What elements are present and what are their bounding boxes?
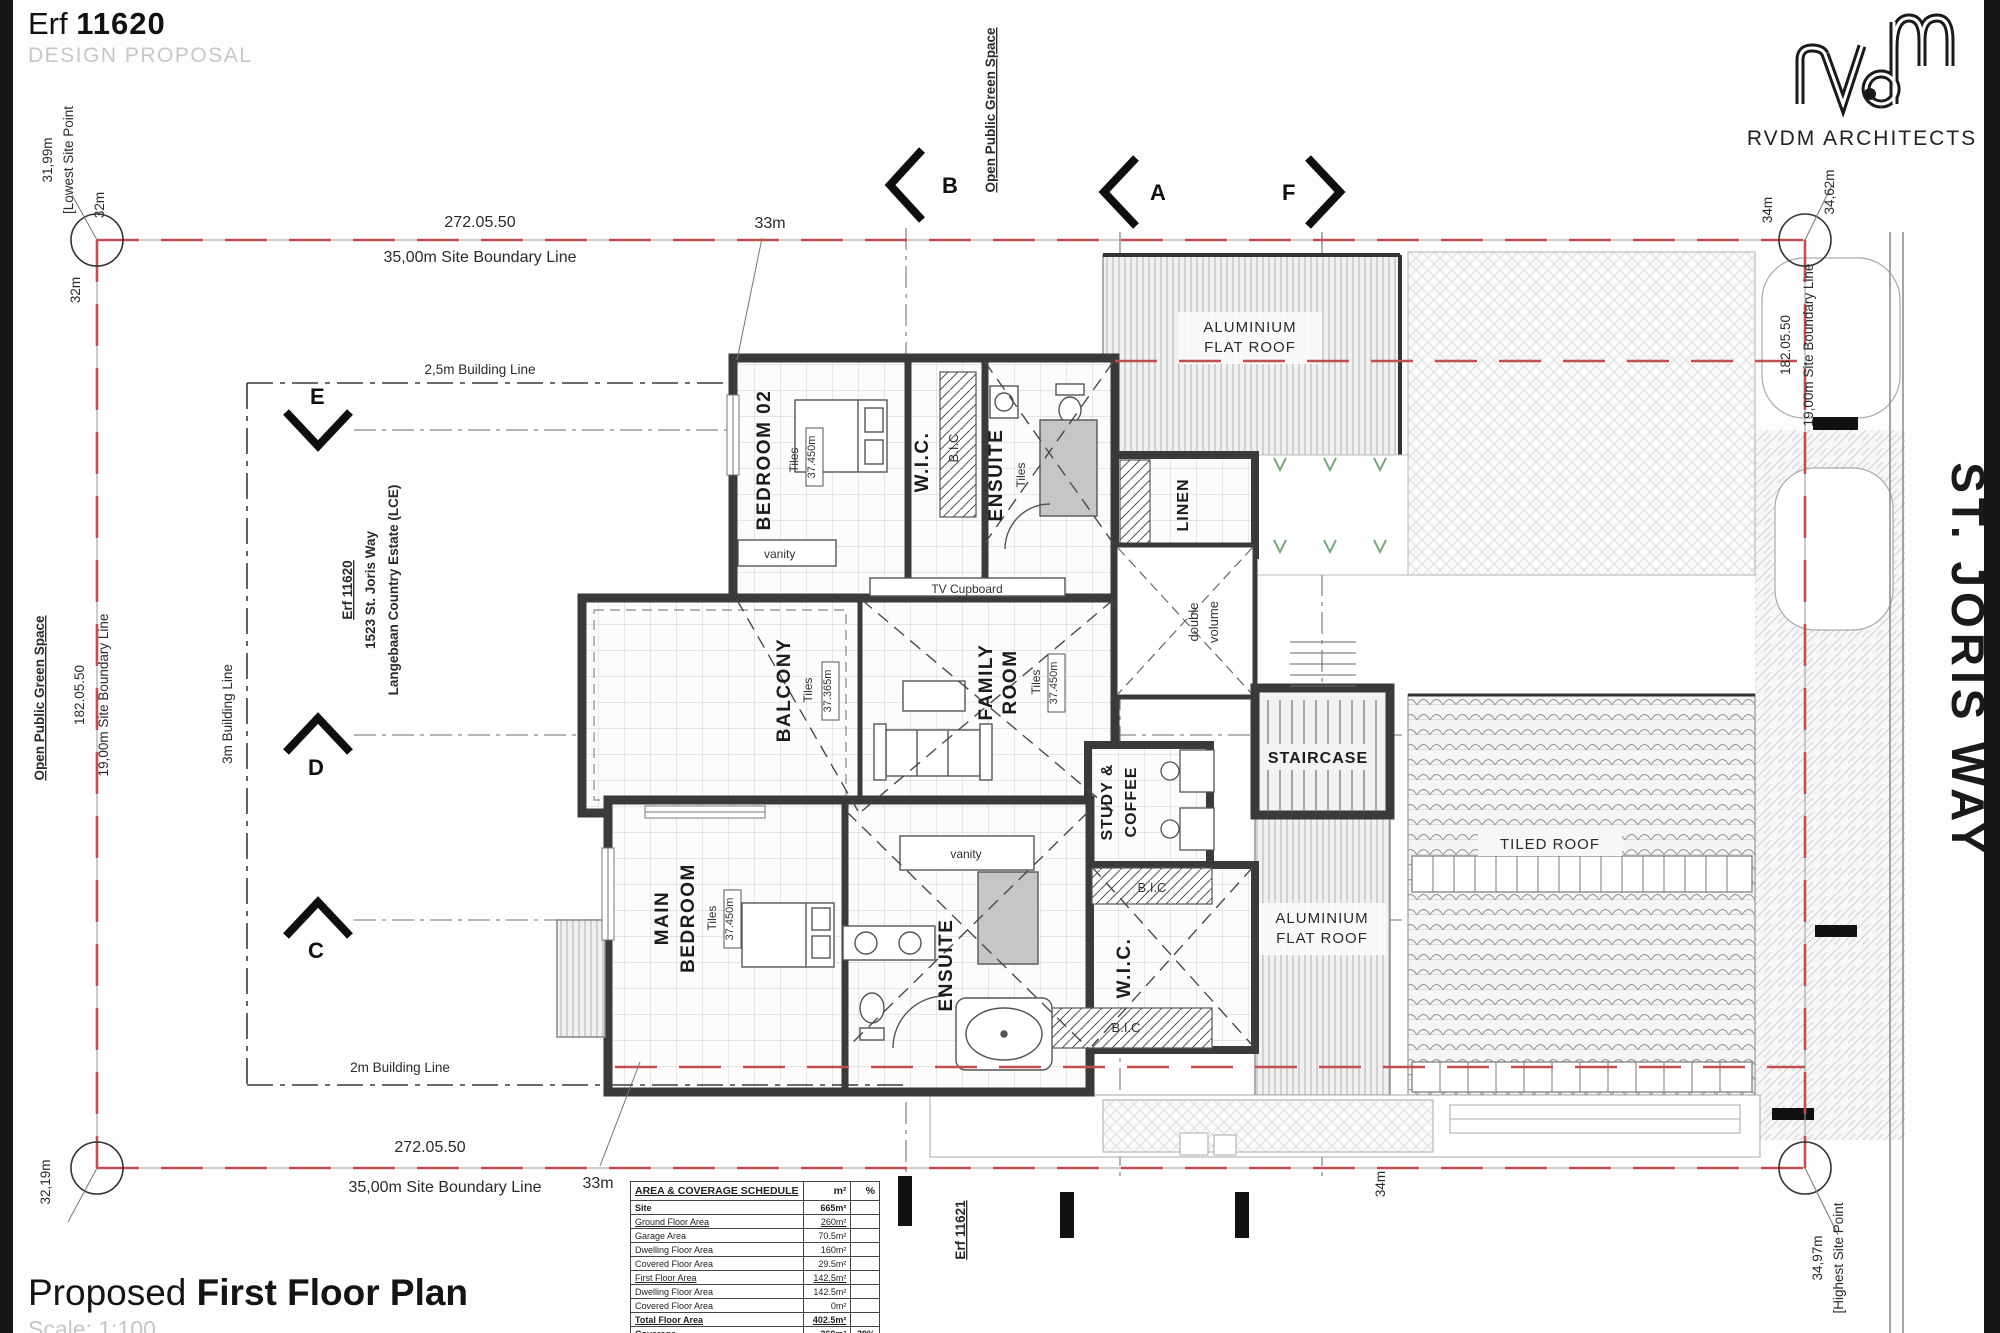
lowest-site-value: 31,99m [40,137,55,182]
dim-34m-bottom: 34m [1373,1171,1388,1197]
marker-d: D [308,755,324,780]
erf-label: Erf [28,6,68,41]
marker-a: A [1150,180,1166,205]
street-name: ST. JORIS WAY [1942,462,1994,858]
building-line-3: 3m Building Line [220,664,235,764]
label-bedroom02-finish: Tiles [787,448,801,473]
sheet-footer: Proposed First Floor Plan Scale: 1:100 [28,1272,468,1333]
lawn-blob-2 [1775,468,1893,630]
label-study-2: COFFEE [1123,767,1140,838]
top-boundary-label: 35,00m Site Boundary Line [383,249,576,266]
schedule-pct [851,1229,880,1243]
left-bearing: 182.05.50 [72,665,87,725]
lowest-site-note: [Lowest Site Point [61,106,76,214]
label-balcony-level: 37.365m [822,670,834,713]
room-balcony-family [582,598,1115,813]
label-wic-lower: W.I.C. [1114,938,1135,999]
right-bearing: 182.05.50 [1778,315,1793,375]
schedule-label: Dwelling Floor Area [631,1285,804,1299]
schedule-title: AREA & COVERAGE SCHEDULE [631,1182,804,1201]
highest-site-note: [Highest Site Point [1831,1202,1846,1313]
label-linen: LINEN [1175,479,1192,532]
schedule-m2: 142.5m² [803,1285,851,1299]
floor-plan-sheet: ST. JORIS WAY [0,0,2000,1333]
tick-1 [898,1176,912,1226]
column-braai [557,920,605,1037]
schedule-pct [851,1257,880,1271]
bottom-bearing: 272.05.50 [394,1139,465,1156]
label-bic-lower-bottom: B.I.C [1112,1020,1141,1035]
marker-e: E [310,384,325,409]
marker-c: C [308,938,324,963]
tick-2 [1060,1192,1074,1238]
label-wic-upper: W.I.C. [912,432,933,493]
tick-3 [1235,1192,1249,1238]
right-boundary-label: 19,00m Site Boundary Line [1801,264,1816,427]
sheet-header: Erf 11620 DESIGN PROPOSAL [28,6,252,68]
dim-33m-top: 33m [754,215,785,232]
road-tick-1 [1813,417,1858,430]
schedule-label: Covered Floor Area [631,1257,804,1271]
erf-address-1: Erf 11620 [340,560,355,619]
schedule-pct [851,1285,880,1299]
planter-strip [1255,455,1408,575]
label-bedroom02-level: 37.450m [806,436,818,479]
label-ensuite-upper: ENSUITE [986,429,1007,522]
schedule-pct [851,1299,880,1313]
road-tick-2 [1815,925,1857,937]
schedule-m2: 70.5m² [803,1229,851,1243]
label-bedroom02: BEDROOM 02 [754,390,775,531]
schedule-row: Garage Area70.5m² [631,1229,880,1243]
dim-33m-bottom: 33m [582,1175,613,1192]
schedule-pct [851,1215,880,1229]
dim-3219: 32,19m [38,1159,53,1204]
linen-bic-hatch [1120,460,1150,550]
label-ensuite-lower: ENSUITE [936,919,957,1012]
label-main-level: 37.450m [724,898,736,941]
label-balcony: BALCONY [774,638,795,742]
erf-title: Erf 11620 [28,6,252,42]
label-vanity-lower: vanity [950,847,981,861]
ground-floor-hint [930,1095,1760,1157]
schedule-row: Coverage260m²39% [631,1327,880,1333]
label-vanity-upper: vanity [764,547,795,561]
schedule-label: Garage Area [631,1229,804,1243]
plan-drawing: ST. JORIS WAY [0,0,2000,1333]
label-main-1: MAIN [652,891,673,946]
drawing-title-bold: First Floor Plan [197,1272,468,1313]
schedule-label: Coverage [631,1327,804,1333]
rvdm-logo-mark [1742,8,1982,120]
erf-address-3: Langebaan Country Estate (LCE) [386,485,401,696]
label-study-1: STUDY & [1099,764,1116,841]
schedule-m2: 142.5m² [803,1271,851,1285]
flat-roof-top-label-2: FLAT ROOF [1204,339,1296,356]
marker-f: F [1282,180,1295,205]
staircase-label: STAIRCASE [1268,750,1368,767]
building-line-2: 2m Building Line [350,1060,450,1075]
schedule-m2: 0m² [803,1299,851,1313]
label-ensuite-upper-finish: Tiles [1014,463,1028,488]
bed-main [742,903,834,967]
label-double-volume-2: volume [1206,601,1221,643]
schedule-row: Covered Floor Area0m² [631,1299,880,1313]
highest-site-value: 34,97m [1810,1235,1825,1280]
schedule-header-row: AREA & COVERAGE SCHEDULE m² % [631,1182,880,1201]
label-family-finish: Tiles [1029,670,1043,695]
green-space-left: Open Public Green Space [32,615,47,781]
green-space-top: Open Public Green Space [983,27,998,193]
dim-32m-a: 32m [92,192,107,218]
schedule-m2: 665m² [803,1201,851,1215]
erf-neighbor: Erf 11621 [953,1200,968,1260]
architect-logo: RVDM ARCHITECTS [1742,8,1982,158]
tiled-roof-label: TILED ROOF [1500,836,1600,853]
drawing-title: Proposed First Floor Plan [28,1272,468,1314]
marker-b: B [942,173,958,198]
neighbor-paving [1408,252,1755,575]
schedule-label: Dwelling Floor Area [631,1243,804,1257]
label-bic-upper: B.I.C [946,434,961,463]
label-balcony-finish: Tiles [801,678,815,703]
dim-34m-top: 34m [1760,197,1775,223]
schedule-row: Dwelling Floor Area160m² [631,1243,880,1257]
flat-roof-lower-label-2: FLAT ROOF [1276,930,1368,947]
schedule-row: Dwelling Floor Area142.5m² [631,1285,880,1299]
schedule-pct [851,1313,880,1327]
schedule-label: Ground Floor Area [631,1215,804,1229]
drawing-scale: Scale: 1:100 [28,1316,468,1333]
schedule-pct: 39% [851,1327,880,1333]
building-line-25: 2,5m Building Line [424,362,535,377]
schedule-pct [851,1201,880,1215]
schedule-col-m2: m² [803,1182,851,1201]
double-volume-void [1115,545,1255,697]
bottom-boundary-label: 35,00m Site Boundary Line [348,1179,541,1196]
flat-roof-top-label-1: ALUMINIUM [1203,319,1296,336]
dim-32m-b: 32m [68,277,83,303]
road-tick-3 [1772,1108,1814,1120]
schedule-col-pct: % [851,1182,880,1201]
flat-roof-lower-label-1: ALUMINIUM [1275,910,1368,927]
schedule-row: Ground Floor Area260m² [631,1215,880,1229]
left-boundary-label: 19,00m Site Boundary Line [96,614,111,777]
top-bearing: 272.05.50 [444,214,515,231]
schedule-row: Total Floor Area402.5m² [631,1313,880,1327]
roof-beam-band [1412,856,1752,892]
schedule-m2: 160m² [803,1243,851,1257]
erf-number: 11620 [76,6,166,41]
erf-address-2: 1523 St. Joris Way [363,530,378,649]
schedule-row: Site665m² [631,1201,880,1215]
label-family-2: ROOM [1000,649,1021,714]
label-double-volume-1: double [1186,602,1201,641]
schedule-label: Site [631,1201,804,1215]
schedule-pct [851,1271,880,1285]
label-family-1: FAMILY [976,644,997,721]
label-tv-cupboard: TV Cupboard [931,582,1002,596]
sheet-subtitle: DESIGN PROPOSAL [28,44,252,68]
label-bic-lower-top: B.I.C [1138,880,1167,895]
drawing-title-light: Proposed [28,1272,197,1313]
area-coverage-schedule: AREA & COVERAGE SCHEDULE m² % Site665m² … [630,1181,880,1333]
architect-name: RVDM ARCHITECTS [1742,127,1982,151]
schedule-row: Covered Floor Area29.5m² [631,1257,880,1271]
schedule-row: First Floor Area142.5m² [631,1271,880,1285]
schedule-m2: 29.5m² [803,1257,851,1271]
schedule-label: First Floor Area [631,1271,804,1285]
schedule-label: Total Floor Area [631,1313,804,1327]
tiled-roof [1408,695,1755,1095]
flat-roof-lower: ALUMINIUM FLAT ROOF [1255,815,1390,1095]
schedule-label: Covered Floor Area [631,1299,804,1313]
schedule-pct [851,1243,880,1257]
schedule-m2: 402.5m² [803,1313,851,1327]
schedule-m2: 260m² [803,1327,851,1333]
label-main-2: BEDROOM [678,863,699,973]
label-main-finish: Tiles [705,906,719,931]
dim-3462: 34,62m [1822,169,1837,214]
schedule-m2: 260m² [803,1215,851,1229]
label-family-level: 37.450m [1048,662,1060,705]
